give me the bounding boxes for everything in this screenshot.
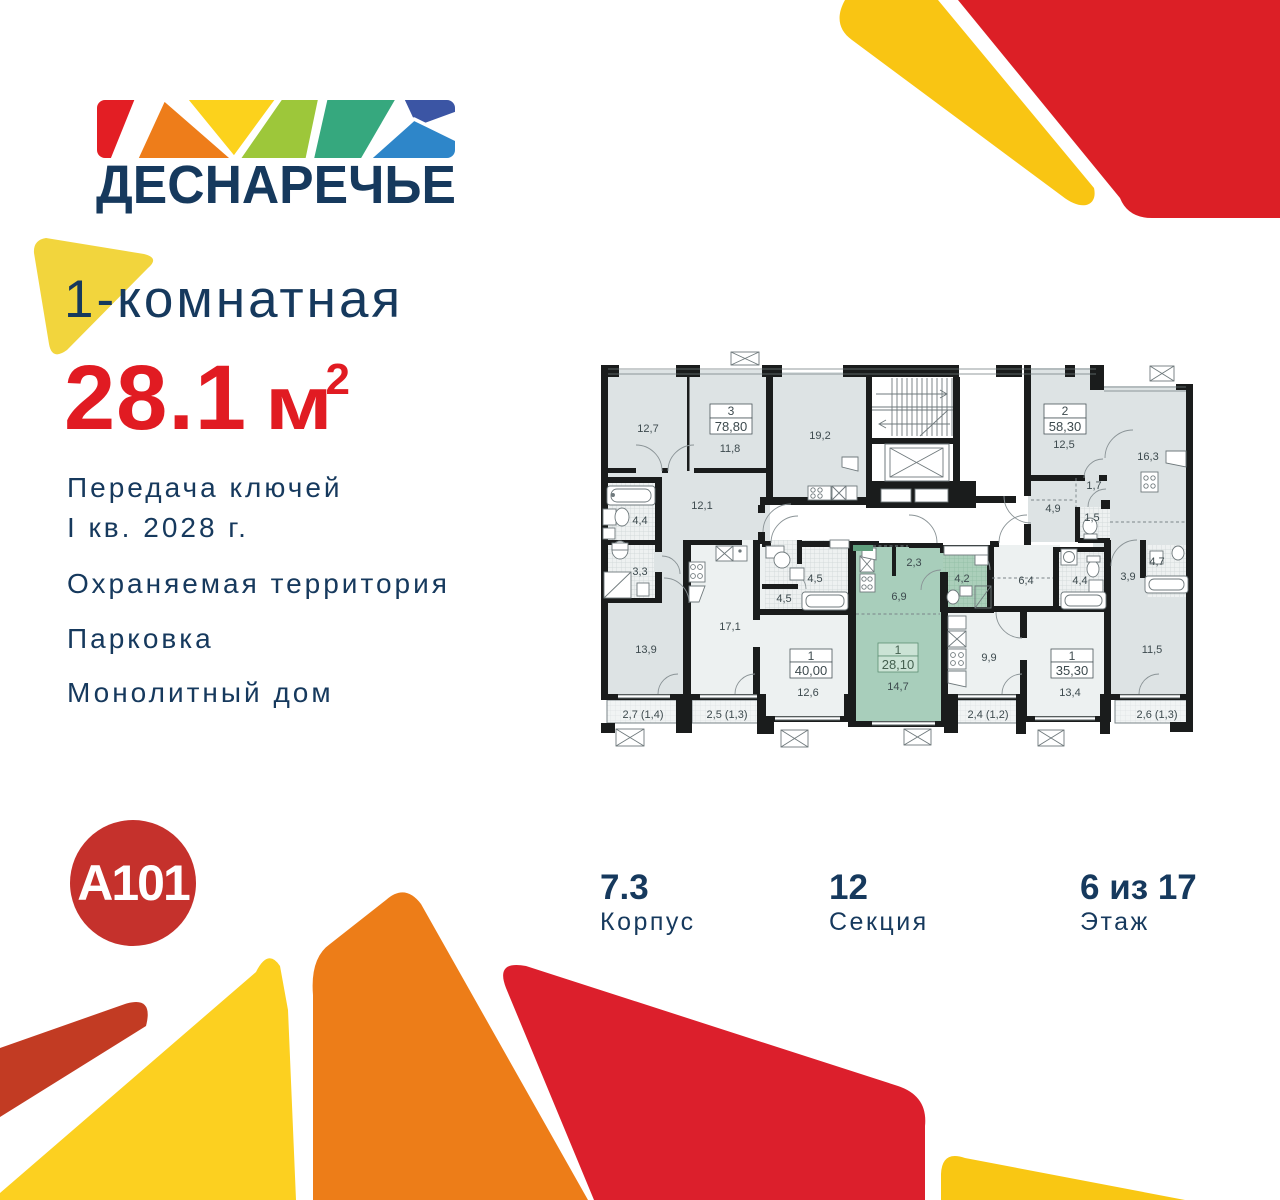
svg-text:17,1: 17,1 [719,621,740,633]
svg-text:3,3: 3,3 [632,566,647,578]
svg-text:2,6 (1,3): 2,6 (1,3) [1137,709,1178,721]
svg-text:4,9: 4,9 [1045,503,1060,515]
svg-text:13,4: 13,4 [1059,687,1080,699]
svg-text:1: 1 [1069,649,1076,663]
svg-text:9,9: 9,9 [981,652,996,664]
svg-text:2,5 (1,3): 2,5 (1,3) [707,709,748,721]
svg-text:4,5: 4,5 [776,593,791,605]
svg-text:19,2: 19,2 [809,430,830,442]
svg-text:4,2: 4,2 [954,573,969,585]
svg-text:11,8: 11,8 [720,443,741,455]
svg-text:2: 2 [1062,404,1069,418]
svg-text:ДЕСНАРЕЧЬЕ: ДЕСНАРЕЧЬЕ [96,155,456,215]
svg-text:78,80: 78,80 [715,419,748,434]
svg-text:4,5: 4,5 [807,573,822,585]
svg-text:28,10: 28,10 [882,657,915,672]
svg-text:1,5: 1,5 [1084,512,1099,524]
svg-text:13,9: 13,9 [635,644,656,656]
svg-text:1,7: 1,7 [1086,480,1101,492]
svg-text:2,4 (1,2): 2,4 (1,2) [968,709,1009,721]
svg-text:40,00: 40,00 [795,663,828,678]
svg-text:3,9: 3,9 [1120,571,1135,583]
svg-text:4,4: 4,4 [1072,575,1087,587]
svg-text:58,30: 58,30 [1049,419,1082,434]
svg-text:2,3: 2,3 [906,557,921,569]
svg-text:12,7: 12,7 [637,423,658,435]
svg-text:16,3: 16,3 [1137,451,1158,463]
svg-text:14,7: 14,7 [887,681,908,693]
svg-text:1: 1 [895,643,902,657]
svg-text:12,1: 12,1 [691,500,712,512]
svg-text:4,4: 4,4 [632,515,647,527]
svg-text:35,30: 35,30 [1056,663,1089,678]
svg-text:3: 3 [728,404,735,418]
svg-text:4,7: 4,7 [1149,556,1164,568]
svg-text:6,9: 6,9 [891,591,906,603]
svg-text:12,6: 12,6 [797,687,818,699]
svg-text:6,4: 6,4 [1018,575,1033,587]
svg-text:2,7 (1,4): 2,7 (1,4) [623,709,664,721]
svg-text:12,5: 12,5 [1053,439,1074,451]
svg-text:11,5: 11,5 [1142,644,1163,656]
svg-text:1: 1 [808,649,815,663]
